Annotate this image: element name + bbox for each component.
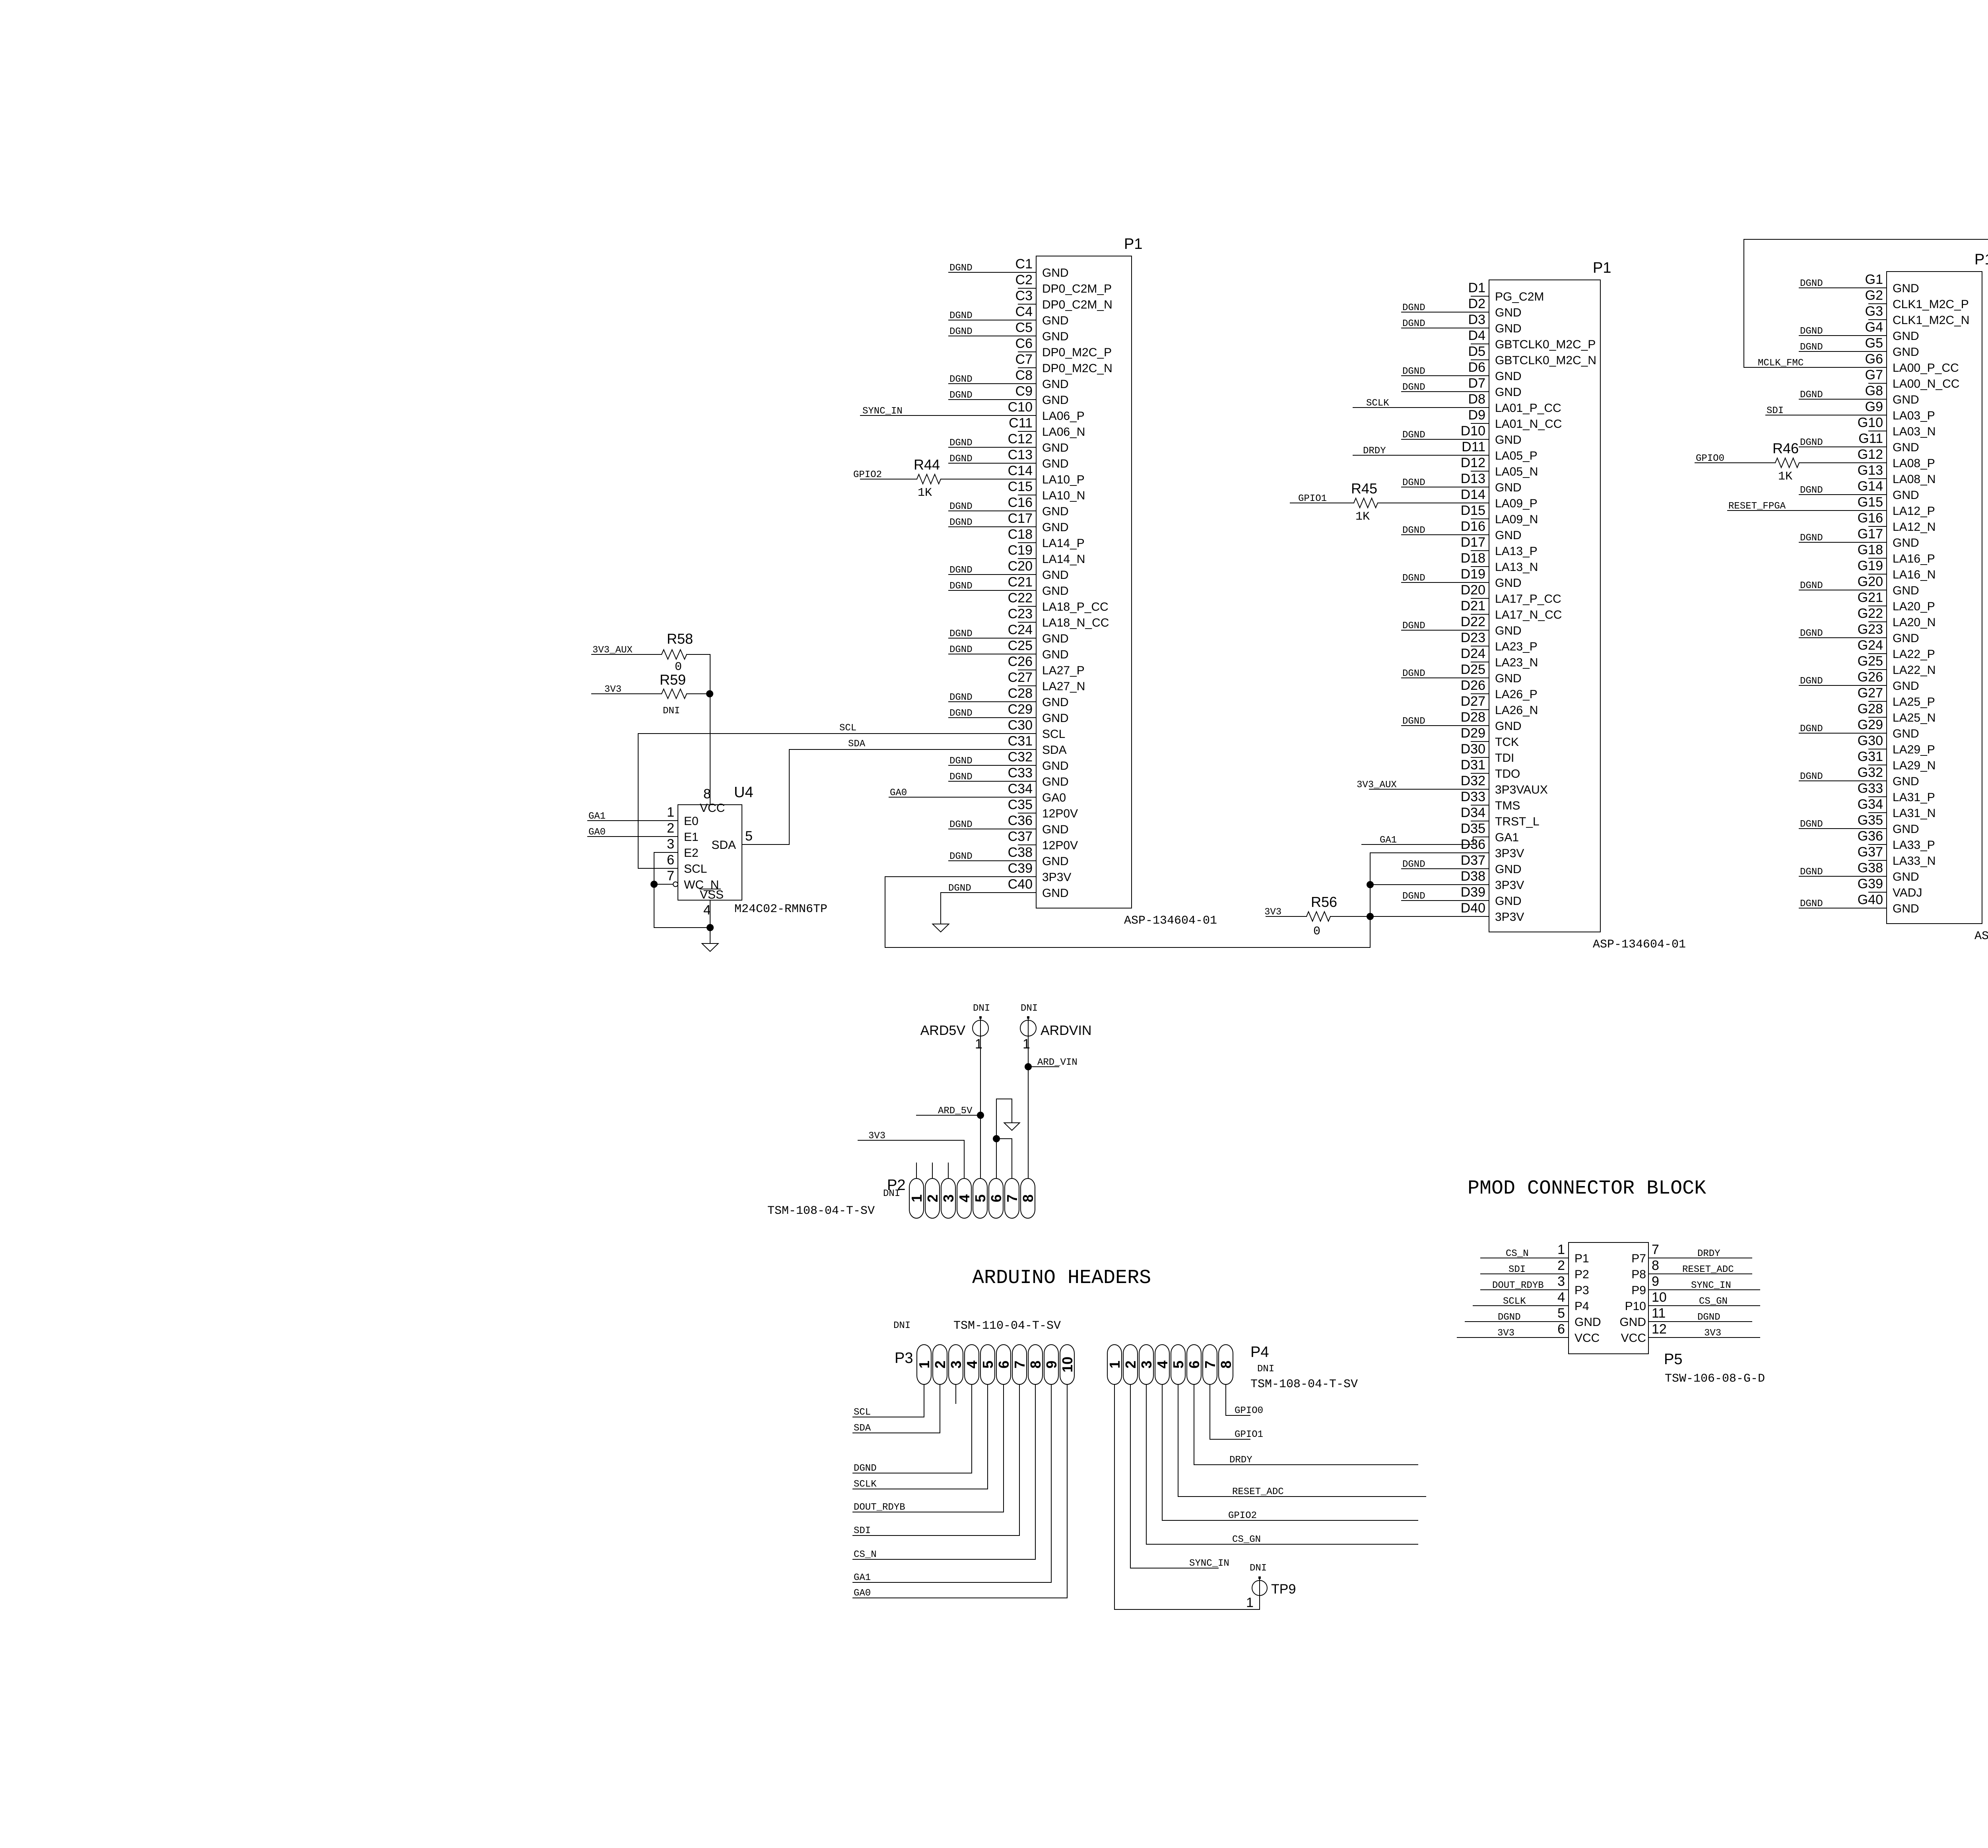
svg-text:VCC: VCC — [1574, 1332, 1600, 1345]
svg-text:D3: D3 — [1468, 312, 1485, 327]
svg-text:G37: G37 — [1858, 844, 1883, 860]
svg-text:3: 3 — [667, 837, 674, 852]
svg-text:ARD5V: ARD5V — [920, 1023, 966, 1038]
svg-text:G40: G40 — [1858, 892, 1883, 907]
svg-text:P1: P1 — [1124, 236, 1142, 252]
svg-text:C32: C32 — [1008, 749, 1033, 765]
svg-text:DOUT_RDYB: DOUT_RDYB — [854, 1502, 905, 1513]
svg-text:8: 8 — [1020, 1194, 1036, 1202]
svg-text:GND: GND — [1893, 902, 1919, 915]
svg-text:9: 9 — [1043, 1361, 1060, 1369]
svg-text:GND: GND — [1042, 314, 1069, 327]
svg-text:CLK1_M2C_P: CLK1_M2C_P — [1893, 298, 1969, 311]
svg-text:C15: C15 — [1008, 479, 1033, 494]
svg-text:C34: C34 — [1008, 781, 1033, 796]
svg-text:GND: GND — [1042, 330, 1069, 343]
svg-text:RESET_ADC: RESET_ADC — [1232, 1487, 1284, 1497]
svg-text:C39: C39 — [1008, 861, 1033, 876]
svg-text:DGND: DGND — [1498, 1312, 1521, 1323]
svg-text:P9: P9 — [1631, 1284, 1646, 1297]
svg-text:G15: G15 — [1858, 495, 1883, 510]
svg-text:P1: P1 — [1593, 260, 1611, 276]
svg-text:GND: GND — [1495, 322, 1522, 335]
svg-text:G24: G24 — [1858, 638, 1883, 653]
svg-text:1K: 1K — [1355, 510, 1370, 524]
svg-text:GND: GND — [1042, 457, 1069, 470]
svg-text:G1: G1 — [1865, 272, 1883, 287]
svg-text:C9: C9 — [1015, 384, 1033, 399]
svg-text:C12: C12 — [1008, 431, 1033, 446]
svg-text:C4: C4 — [1015, 304, 1033, 319]
svg-text:D35: D35 — [1461, 821, 1485, 836]
svg-text:DP0_M2C_P: DP0_M2C_P — [1042, 346, 1112, 359]
svg-text:GA1: GA1 — [1495, 831, 1519, 844]
svg-text:GND: GND — [1042, 759, 1069, 773]
svg-text:D20: D20 — [1461, 582, 1485, 598]
svg-text:LA09_N: LA09_N — [1495, 513, 1538, 526]
svg-text:3P3V: 3P3V — [1042, 871, 1071, 884]
svg-text:2: 2 — [1557, 1258, 1565, 1273]
svg-text:SDA: SDA — [711, 839, 736, 852]
svg-text:C10: C10 — [1008, 400, 1033, 415]
svg-text:5: 5 — [972, 1194, 988, 1202]
svg-text:D4: D4 — [1468, 328, 1485, 343]
svg-text:C30: C30 — [1008, 718, 1033, 733]
svg-text:GND: GND — [1495, 624, 1522, 637]
svg-text:TSW-106-08-G-D: TSW-106-08-G-D — [1665, 1372, 1765, 1386]
svg-text:D15: D15 — [1461, 503, 1485, 518]
svg-text:WC_N: WC_N — [684, 878, 719, 891]
svg-text:G32: G32 — [1858, 765, 1883, 780]
svg-text:R59: R59 — [660, 672, 686, 688]
svg-text:D31: D31 — [1461, 757, 1485, 773]
svg-text:G5: G5 — [1865, 336, 1883, 351]
svg-text:3P3VAUX: 3P3VAUX — [1495, 783, 1548, 796]
svg-text:GND: GND — [1042, 887, 1069, 900]
svg-text:GND: GND — [1893, 775, 1919, 788]
svg-text:LA08_N: LA08_N — [1893, 473, 1936, 486]
svg-text:C16: C16 — [1008, 495, 1033, 510]
svg-text:3P3V: 3P3V — [1495, 910, 1524, 924]
svg-text:DGND: DGND — [949, 374, 973, 385]
svg-text:ASP-134604-01: ASP-134604-01 — [1593, 938, 1686, 951]
svg-text:LA12_N: LA12_N — [1893, 520, 1936, 534]
svg-text:DGND: DGND — [1402, 382, 1425, 393]
svg-text:6: 6 — [667, 852, 674, 868]
svg-text:CLK1_M2C_N: CLK1_M2C_N — [1893, 314, 1969, 327]
svg-text:D27: D27 — [1461, 694, 1485, 709]
svg-text:PG_C2M: PG_C2M — [1495, 290, 1544, 303]
svg-text:GND: GND — [1893, 679, 1919, 693]
svg-text:G14: G14 — [1858, 479, 1883, 494]
svg-text:5: 5 — [980, 1361, 996, 1369]
svg-text:LA23_N: LA23_N — [1495, 656, 1538, 669]
svg-text:11: 11 — [1652, 1306, 1666, 1321]
svg-text:TSM-108-04-T-SV: TSM-108-04-T-SV — [1250, 1378, 1358, 1391]
svg-text:D11: D11 — [1462, 439, 1485, 454]
svg-text:C31: C31 — [1008, 734, 1033, 749]
svg-text:SDA: SDA — [854, 1423, 871, 1434]
svg-text:DGND: DGND — [1402, 573, 1425, 584]
svg-text:GND: GND — [1893, 441, 1919, 454]
svg-text:M24C02-RMN6TP: M24C02-RMN6TP — [734, 903, 827, 916]
svg-text:G19: G19 — [1858, 558, 1883, 573]
svg-text:GND: GND — [1893, 632, 1919, 645]
svg-text:D5: D5 — [1468, 344, 1485, 359]
svg-text:DGND: DGND — [1800, 899, 1823, 909]
svg-text:GND: GND — [1042, 441, 1069, 454]
svg-text:TRST_L: TRST_L — [1495, 815, 1540, 828]
svg-text:SDA: SDA — [1042, 743, 1067, 757]
svg-text:G39: G39 — [1858, 876, 1883, 891]
svg-text:G11: G11 — [1858, 431, 1883, 446]
svg-text:D18: D18 — [1461, 551, 1485, 566]
svg-text:12P0V: 12P0V — [1042, 839, 1078, 852]
svg-text:G28: G28 — [1858, 701, 1883, 716]
svg-text:D23: D23 — [1461, 630, 1485, 645]
svg-text:G10: G10 — [1858, 415, 1883, 430]
svg-text:P7: P7 — [1631, 1252, 1646, 1265]
svg-text:DGND: DGND — [949, 565, 973, 576]
svg-text:G8: G8 — [1865, 383, 1883, 398]
svg-text:DGND: DGND — [949, 390, 973, 401]
svg-text:LA26_N: LA26_N — [1495, 704, 1538, 717]
svg-text:GA0: GA0 — [588, 827, 606, 838]
svg-text:LA17_N_CC: LA17_N_CC — [1495, 608, 1562, 621]
svg-text:G35: G35 — [1858, 813, 1883, 828]
svg-text:DGND: DGND — [949, 263, 973, 274]
svg-text:DP0_C2M_N: DP0_C2M_N — [1042, 298, 1112, 311]
svg-text:LA03_N: LA03_N — [1893, 425, 1936, 438]
svg-text:GND: GND — [1042, 584, 1069, 598]
svg-text:VCC: VCC — [1621, 1332, 1646, 1345]
svg-text:DGND: DGND — [1800, 278, 1823, 289]
svg-text:4: 4 — [1557, 1290, 1565, 1305]
svg-text:3V3: 3V3 — [1497, 1328, 1514, 1339]
svg-text:DGND: DGND — [949, 644, 973, 655]
svg-text:D1: D1 — [1468, 280, 1485, 295]
svg-text:1: 1 — [1107, 1361, 1123, 1369]
svg-text:P5: P5 — [1664, 1351, 1682, 1368]
svg-text:DGND: DGND — [1402, 668, 1425, 679]
svg-text:C11: C11 — [1009, 415, 1033, 431]
svg-text:LA29_P: LA29_P — [1893, 743, 1935, 756]
svg-text:LA01_N_CC: LA01_N_CC — [1495, 417, 1562, 431]
svg-text:D14: D14 — [1461, 487, 1485, 502]
svg-text:D33: D33 — [1461, 789, 1485, 804]
svg-text:3V3: 3V3 — [604, 684, 621, 695]
svg-text:GND: GND — [1893, 330, 1919, 343]
svg-text:3V3: 3V3 — [1264, 907, 1281, 918]
svg-text:1K: 1K — [1778, 470, 1792, 483]
svg-text:3: 3 — [1557, 1274, 1565, 1289]
svg-text:DGND: DGND — [1800, 485, 1823, 496]
svg-text:G30: G30 — [1858, 733, 1883, 748]
svg-text:GND: GND — [1495, 386, 1522, 399]
svg-text:TSM-108-04-T-SV: TSM-108-04-T-SV — [767, 1204, 875, 1218]
svg-text:SDI: SDI — [1508, 1264, 1526, 1275]
svg-text:CS_N: CS_N — [854, 1549, 877, 1560]
svg-text:GA0: GA0 — [890, 788, 907, 798]
svg-text:C35: C35 — [1008, 797, 1033, 812]
svg-text:DGND: DGND — [949, 454, 973, 464]
svg-text:C27: C27 — [1008, 670, 1033, 685]
svg-text:LA22_N: LA22_N — [1893, 664, 1936, 677]
svg-text:C6: C6 — [1015, 336, 1033, 351]
svg-text:R45: R45 — [1351, 480, 1377, 497]
svg-text:GPIO2: GPIO2 — [1228, 1510, 1257, 1521]
svg-text:LA25_N: LA25_N — [1893, 711, 1936, 724]
svg-text:DGND: DGND — [949, 772, 973, 782]
svg-text:9: 9 — [1652, 1274, 1659, 1289]
svg-text:C2: C2 — [1015, 272, 1033, 287]
svg-text:DNI: DNI — [1257, 1364, 1274, 1374]
svg-text:G3: G3 — [1865, 304, 1883, 319]
svg-text:G12: G12 — [1858, 447, 1883, 462]
svg-text:DRDY: DRDY — [1229, 1455, 1252, 1466]
svg-text:G23: G23 — [1858, 622, 1883, 637]
svg-text:GND: GND — [1495, 529, 1522, 542]
svg-text:GND: GND — [1893, 489, 1919, 502]
svg-text:D30: D30 — [1461, 742, 1485, 757]
svg-text:DGND: DGND — [1800, 533, 1823, 544]
svg-text:D39: D39 — [1461, 885, 1485, 900]
svg-text:DGND: DGND — [1402, 891, 1425, 902]
svg-text:R58: R58 — [667, 631, 693, 647]
svg-text:3: 3 — [940, 1194, 957, 1202]
svg-text:LA14_P: LA14_P — [1042, 537, 1085, 550]
svg-text:D13: D13 — [1461, 471, 1485, 486]
svg-text:D37: D37 — [1461, 853, 1485, 868]
svg-text:10: 10 — [1652, 1290, 1667, 1305]
svg-text:U4: U4 — [734, 784, 753, 801]
svg-text:D25: D25 — [1461, 662, 1485, 677]
svg-text:P8: P8 — [1631, 1268, 1646, 1281]
svg-text:C40: C40 — [1008, 877, 1033, 892]
svg-text:C7: C7 — [1015, 352, 1033, 367]
svg-text:GND: GND — [1042, 775, 1069, 788]
svg-text:DGND: DGND — [1402, 430, 1425, 441]
svg-text:C36: C36 — [1008, 813, 1033, 828]
svg-text:C3: C3 — [1015, 288, 1033, 303]
svg-text:SCL: SCL — [854, 1407, 871, 1418]
svg-text:G27: G27 — [1858, 685, 1883, 701]
svg-text:TDI: TDI — [1495, 751, 1514, 765]
svg-text:G33: G33 — [1858, 781, 1883, 796]
svg-text:GA0: GA0 — [1042, 791, 1066, 804]
svg-text:LA31_P: LA31_P — [1893, 791, 1935, 804]
svg-text:C22: C22 — [1008, 590, 1033, 606]
svg-text:3P3V: 3P3V — [1495, 847, 1524, 860]
svg-text:CS_N: CS_N — [1506, 1248, 1529, 1259]
svg-text:C20: C20 — [1008, 559, 1033, 574]
svg-text:D29: D29 — [1461, 726, 1485, 741]
svg-text:GND: GND — [1042, 394, 1069, 407]
svg-text:LA33_P: LA33_P — [1893, 839, 1935, 852]
svg-text:C1: C1 — [1015, 256, 1033, 272]
svg-text:GND: GND — [1042, 712, 1069, 725]
svg-text:P3: P3 — [895, 1350, 913, 1367]
svg-text:D17: D17 — [1461, 535, 1485, 550]
svg-text:DGND: DGND — [1402, 318, 1425, 329]
svg-text:1: 1 — [975, 1037, 982, 1052]
svg-text:DOUT_RDYB: DOUT_RDYB — [1492, 1280, 1544, 1291]
svg-text:GND: GND — [1893, 536, 1919, 549]
svg-text:G36: G36 — [1858, 829, 1883, 844]
svg-text:GND: GND — [1495, 672, 1522, 685]
svg-text:ARD_VIN: ARD_VIN — [1037, 1057, 1077, 1068]
svg-text:G31: G31 — [1858, 749, 1883, 764]
svg-text:GND: GND — [1574, 1316, 1601, 1329]
svg-text:DGND: DGND — [1800, 390, 1823, 400]
svg-text:GA1: GA1 — [854, 1572, 871, 1583]
svg-text:C13: C13 — [1008, 447, 1033, 462]
svg-text:3P3V: 3P3V — [1495, 879, 1524, 892]
svg-text:LA29_N: LA29_N — [1893, 759, 1936, 772]
svg-text:4: 4 — [1154, 1361, 1171, 1369]
svg-text:D22: D22 — [1461, 614, 1485, 629]
svg-text:SCLK: SCLK — [1503, 1296, 1526, 1307]
svg-text:G22: G22 — [1858, 606, 1883, 621]
svg-text:DGND: DGND — [949, 438, 973, 448]
svg-text:GND: GND — [1042, 648, 1069, 661]
svg-text:LA10_N: LA10_N — [1042, 489, 1085, 502]
svg-text:DGND: DGND — [1800, 628, 1823, 639]
svg-text:1: 1 — [1557, 1242, 1565, 1257]
svg-text:SCLK: SCLK — [854, 1479, 877, 1490]
svg-text:RESET_ADC: RESET_ADC — [1682, 1264, 1734, 1275]
svg-text:G2: G2 — [1865, 288, 1883, 303]
svg-text:G25: G25 — [1858, 654, 1883, 669]
svg-text:GA1: GA1 — [1380, 835, 1397, 846]
svg-text:GND: GND — [1042, 632, 1069, 645]
svg-text:GND: GND — [1495, 306, 1522, 319]
svg-text:C29: C29 — [1008, 702, 1033, 717]
svg-text:GND: GND — [1042, 855, 1069, 868]
svg-text:4: 4 — [956, 1194, 973, 1202]
svg-text:LA13_N: LA13_N — [1495, 561, 1538, 574]
svg-text:D34: D34 — [1461, 805, 1485, 820]
svg-text:4: 4 — [964, 1361, 980, 1369]
svg-text:LA03_P: LA03_P — [1893, 409, 1935, 422]
svg-text:D40: D40 — [1461, 901, 1485, 916]
svg-text:12P0V: 12P0V — [1042, 807, 1078, 820]
svg-text:LA05_N: LA05_N — [1495, 465, 1538, 478]
svg-text:2: 2 — [932, 1361, 948, 1369]
svg-text:LA00_P_CC: LA00_P_CC — [1893, 361, 1959, 375]
svg-text:3V3_AUX: 3V3_AUX — [1357, 780, 1397, 790]
svg-text:D28: D28 — [1461, 710, 1485, 725]
svg-text:MCLK_FMC: MCLK_FMC — [1758, 358, 1804, 369]
svg-text:R56: R56 — [1311, 894, 1337, 910]
svg-text:G21: G21 — [1858, 590, 1883, 605]
svg-text:7: 7 — [667, 868, 674, 883]
svg-text:DP0_M2C_N: DP0_M2C_N — [1042, 362, 1112, 375]
svg-text:LA18_N_CC: LA18_N_CC — [1042, 616, 1109, 629]
svg-text:D26: D26 — [1461, 678, 1485, 693]
svg-text:VADJ: VADJ — [1893, 886, 1922, 899]
svg-text:3V3: 3V3 — [1704, 1328, 1721, 1339]
svg-text:GPIO0: GPIO0 — [1235, 1405, 1263, 1416]
svg-text:DGND: DGND — [1402, 716, 1425, 727]
svg-text:DRDY: DRDY — [1697, 1248, 1720, 1259]
svg-text:1: 1 — [667, 805, 674, 820]
svg-text:DGND: DGND — [949, 756, 973, 767]
svg-text:GND: GND — [1042, 266, 1069, 280]
svg-text:GPIO1: GPIO1 — [1235, 1429, 1263, 1440]
svg-text:LA13_P: LA13_P — [1495, 545, 1538, 558]
svg-text:C38: C38 — [1008, 845, 1033, 860]
svg-text:GND: GND — [1042, 823, 1069, 836]
svg-text:GND: GND — [1893, 393, 1919, 406]
svg-text:D8: D8 — [1468, 392, 1485, 407]
svg-text:8: 8 — [1652, 1258, 1659, 1273]
svg-text:DGND: DGND — [949, 708, 973, 719]
svg-text:GND: GND — [1893, 870, 1919, 883]
svg-text:G26: G26 — [1858, 670, 1883, 685]
svg-text:LA31_N: LA31_N — [1893, 807, 1936, 820]
svg-text:LA33_N: LA33_N — [1893, 854, 1936, 868]
svg-text:DP0_C2M_P: DP0_C2M_P — [1042, 282, 1112, 295]
svg-text:LA12_P: LA12_P — [1893, 505, 1935, 518]
svg-text:6: 6 — [1186, 1361, 1202, 1369]
svg-text:DGND: DGND — [949, 326, 973, 337]
svg-text:SCL: SCL — [684, 862, 707, 875]
svg-text:R44: R44 — [914, 456, 940, 473]
svg-text:TP9: TP9 — [1271, 1582, 1296, 1597]
svg-text:LA26_P: LA26_P — [1495, 688, 1538, 701]
svg-text:C33: C33 — [1008, 765, 1033, 780]
svg-text:D10: D10 — [1461, 423, 1485, 439]
svg-text:C21: C21 — [1008, 575, 1033, 590]
svg-text:GND: GND — [1042, 521, 1069, 534]
svg-text:D16: D16 — [1461, 519, 1485, 534]
svg-text:1: 1 — [1023, 1037, 1030, 1052]
svg-text:SCL: SCL — [1042, 728, 1065, 741]
svg-text:SDI: SDI — [854, 1526, 871, 1536]
svg-text:5: 5 — [745, 829, 753, 844]
svg-text:G38: G38 — [1858, 860, 1883, 875]
svg-text:6: 6 — [996, 1361, 1012, 1369]
svg-text:GND: GND — [1495, 481, 1522, 494]
svg-text:ASP-134604-01: ASP-134604-01 — [1124, 914, 1217, 928]
svg-text:LA27_P: LA27_P — [1042, 664, 1085, 677]
svg-text:GND: GND — [1042, 378, 1069, 391]
svg-text:ARD_5V: ARD_5V — [938, 1106, 973, 1116]
svg-text:SCL: SCL — [839, 723, 856, 734]
svg-text:PMOD CONNECTOR BLOCK: PMOD CONNECTOR BLOCK — [1468, 1177, 1706, 1200]
svg-text:G16: G16 — [1858, 511, 1883, 526]
svg-text:G4: G4 — [1865, 320, 1883, 335]
svg-text:G13: G13 — [1858, 463, 1883, 478]
svg-text:GND: GND — [1893, 727, 1919, 740]
svg-text:D19: D19 — [1461, 567, 1485, 582]
svg-text:D7: D7 — [1468, 376, 1485, 391]
svg-text:C28: C28 — [1008, 686, 1033, 701]
svg-text:LA09_P: LA09_P — [1495, 497, 1538, 510]
svg-text:GND: GND — [1495, 433, 1522, 446]
svg-text:LA06_P: LA06_P — [1042, 410, 1085, 423]
svg-text:E2: E2 — [684, 846, 699, 860]
svg-text:GND: GND — [1495, 895, 1522, 908]
svg-text:8: 8 — [1218, 1361, 1234, 1369]
svg-text:P2: P2 — [1574, 1268, 1589, 1281]
svg-text:P10: P10 — [1625, 1300, 1646, 1313]
svg-text:SYNC_IN: SYNC_IN — [1691, 1280, 1731, 1291]
svg-text:LA20_N: LA20_N — [1893, 616, 1936, 629]
svg-text:12: 12 — [1652, 1322, 1667, 1337]
svg-text:R46: R46 — [1773, 440, 1799, 456]
